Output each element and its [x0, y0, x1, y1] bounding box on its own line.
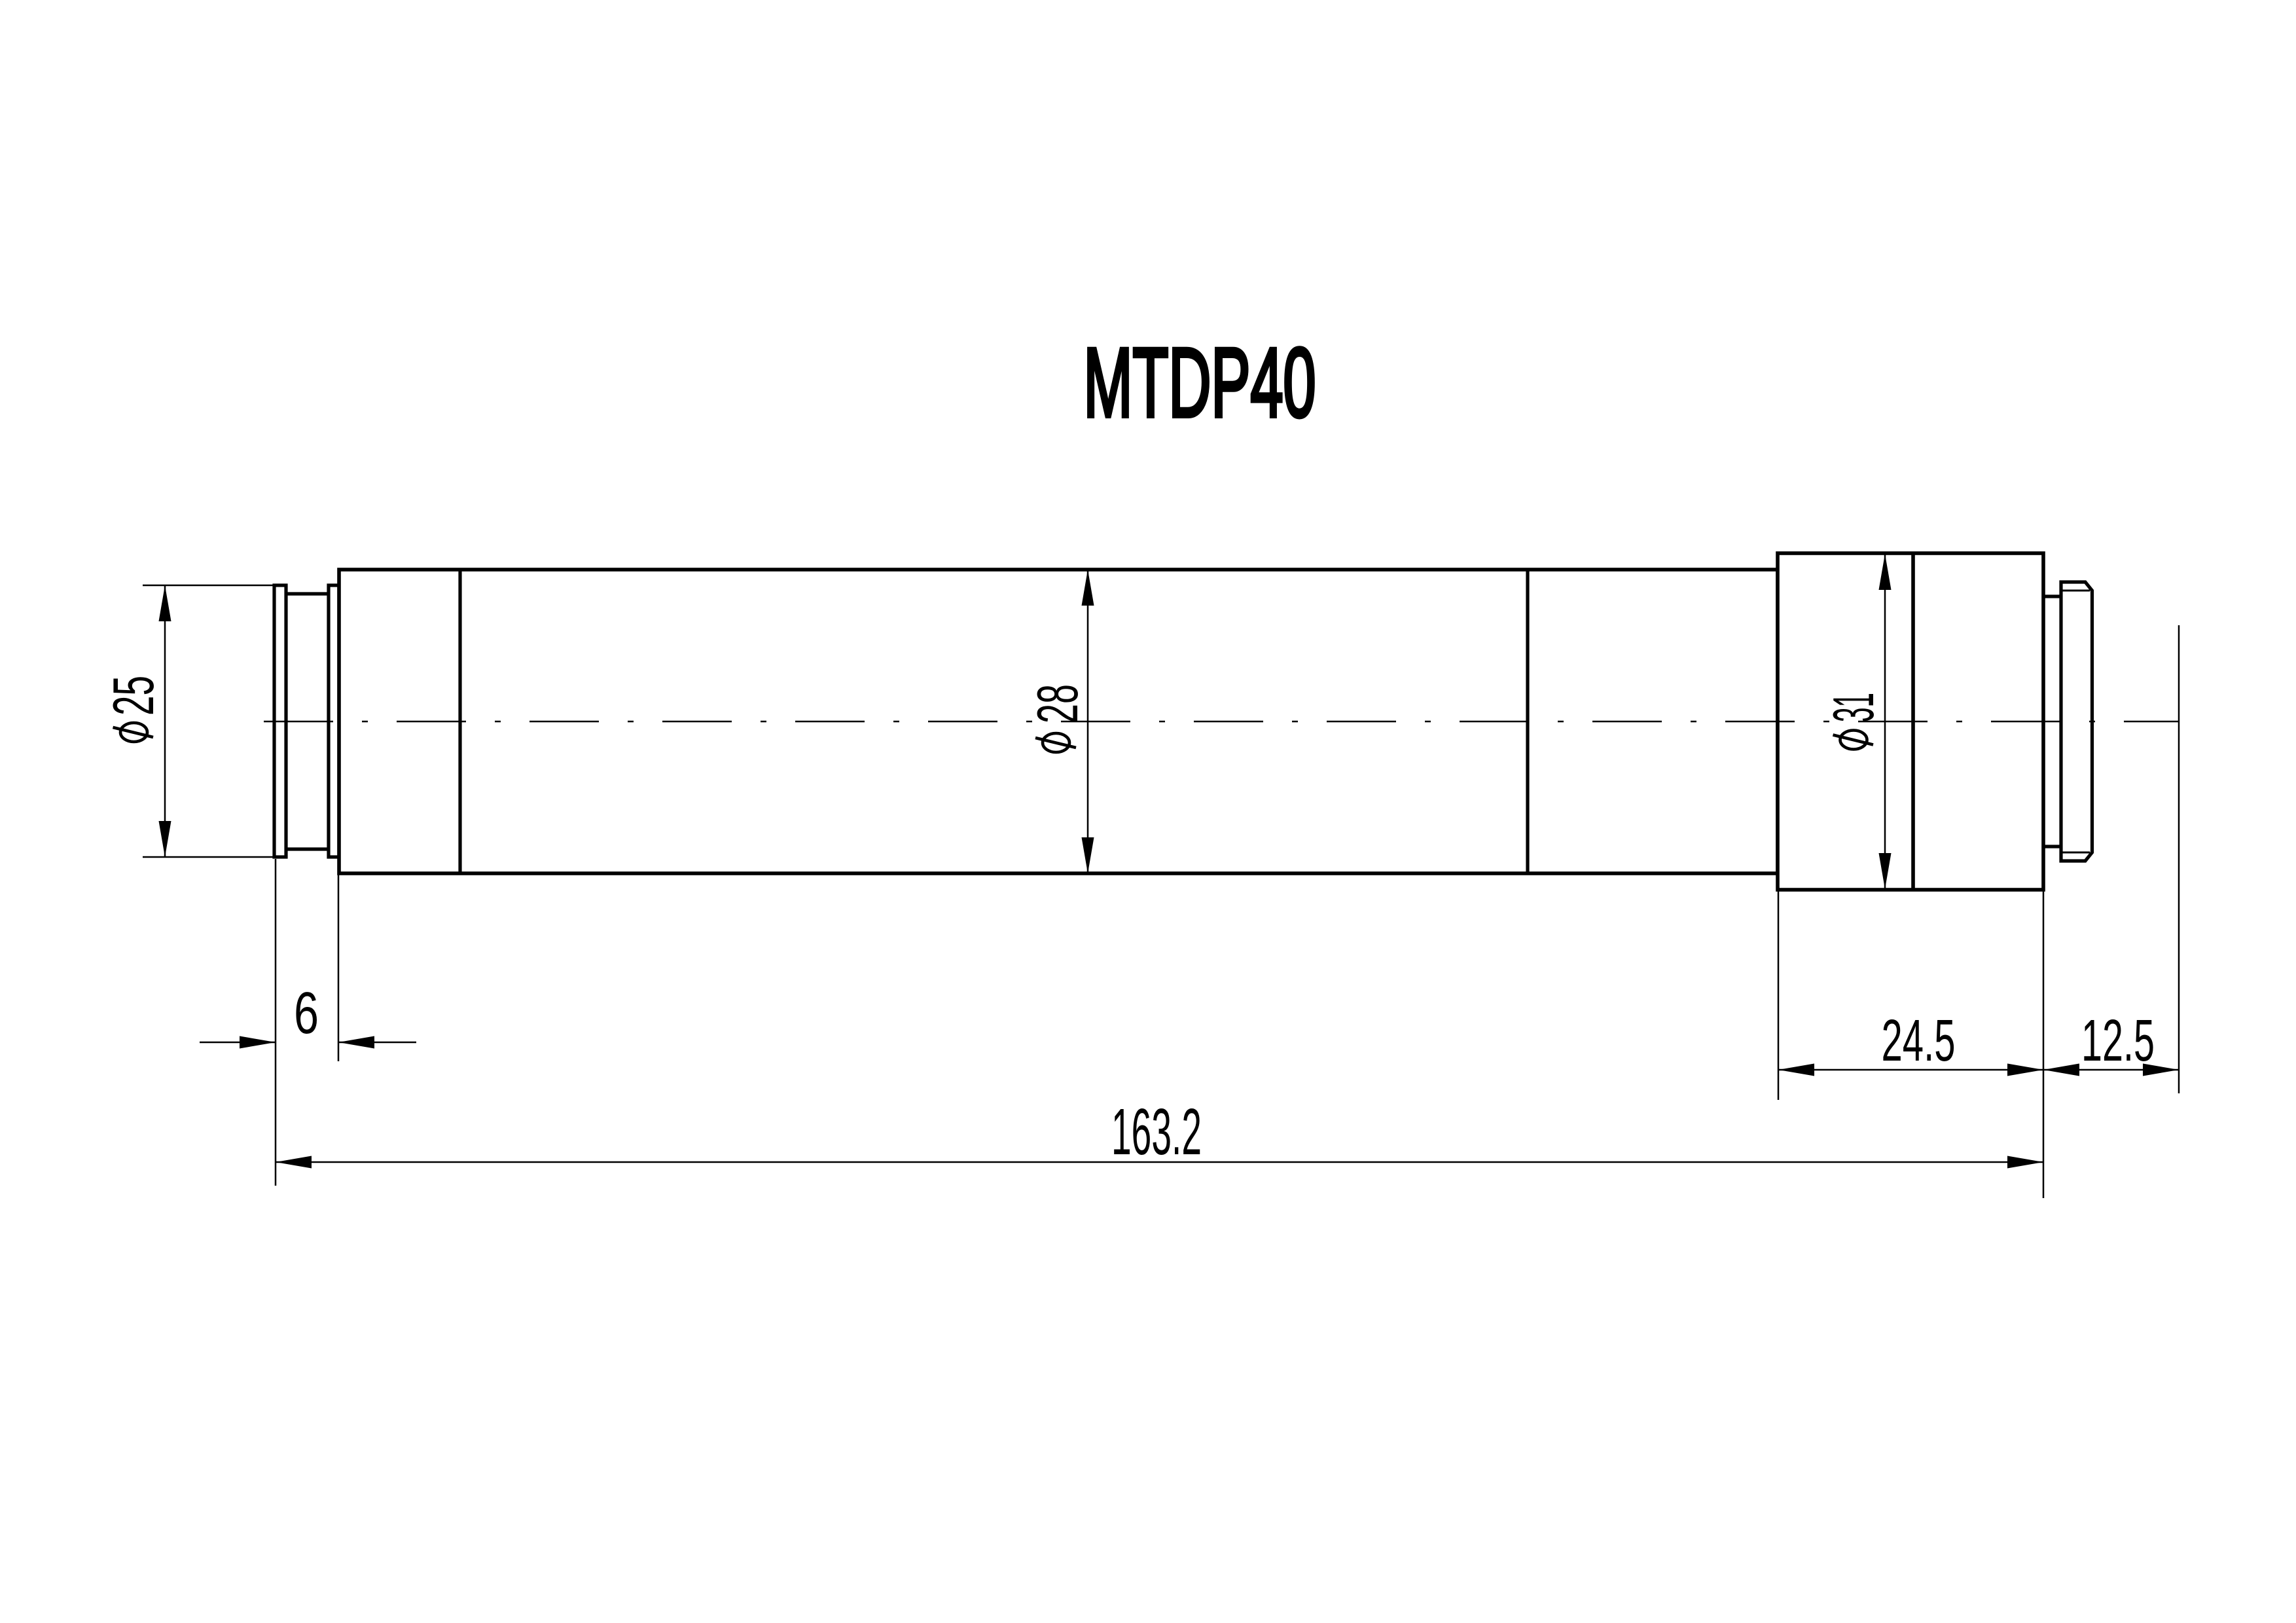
svg-text:28: 28	[1025, 684, 1090, 723]
svg-text:6: 6	[294, 981, 319, 1046]
svg-text:163.2: 163.2	[1111, 1095, 1202, 1169]
svg-text:24.5: 24.5	[1882, 1008, 1956, 1074]
svg-text:31: 31	[1821, 693, 1886, 722]
svg-text:MTDP40: MTDP40	[1084, 327, 1316, 437]
svg-text:25: 25	[101, 676, 166, 716]
svg-text:12.5: 12.5	[2081, 1008, 2155, 1074]
